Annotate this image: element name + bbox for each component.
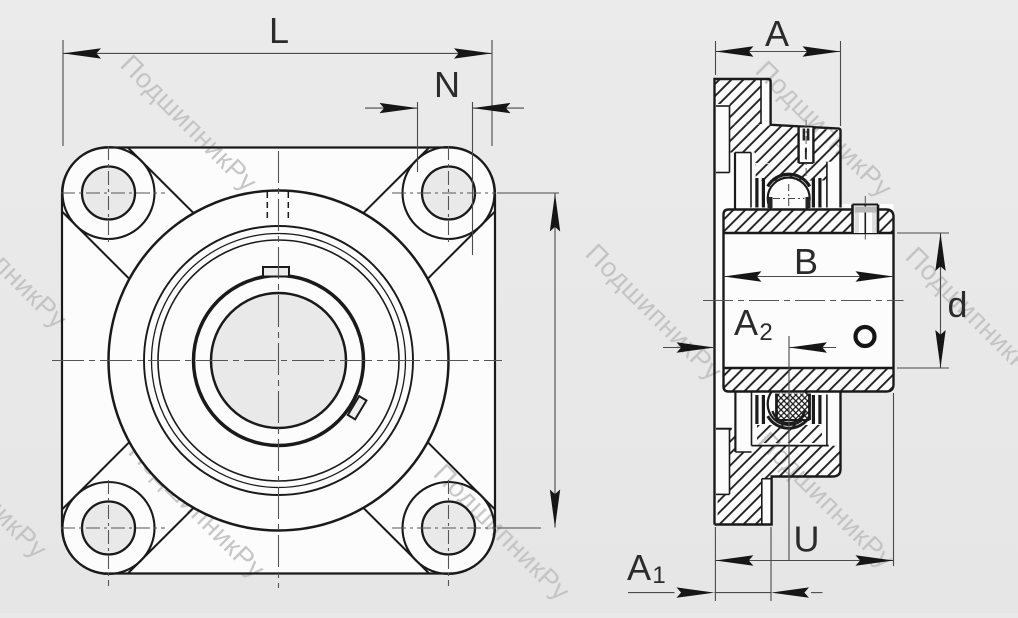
svg-text:A: A	[627, 547, 651, 588]
svg-text:A: A	[734, 302, 758, 343]
svg-text:2: 2	[759, 319, 772, 346]
svg-text:L: L	[269, 10, 289, 51]
svg-text:U: U	[794, 519, 820, 560]
svg-text:1: 1	[652, 562, 665, 589]
svg-text:d: d	[947, 284, 967, 325]
svg-text:N: N	[434, 64, 460, 105]
svg-text:B: B	[794, 241, 818, 282]
svg-text:A: A	[765, 13, 789, 54]
